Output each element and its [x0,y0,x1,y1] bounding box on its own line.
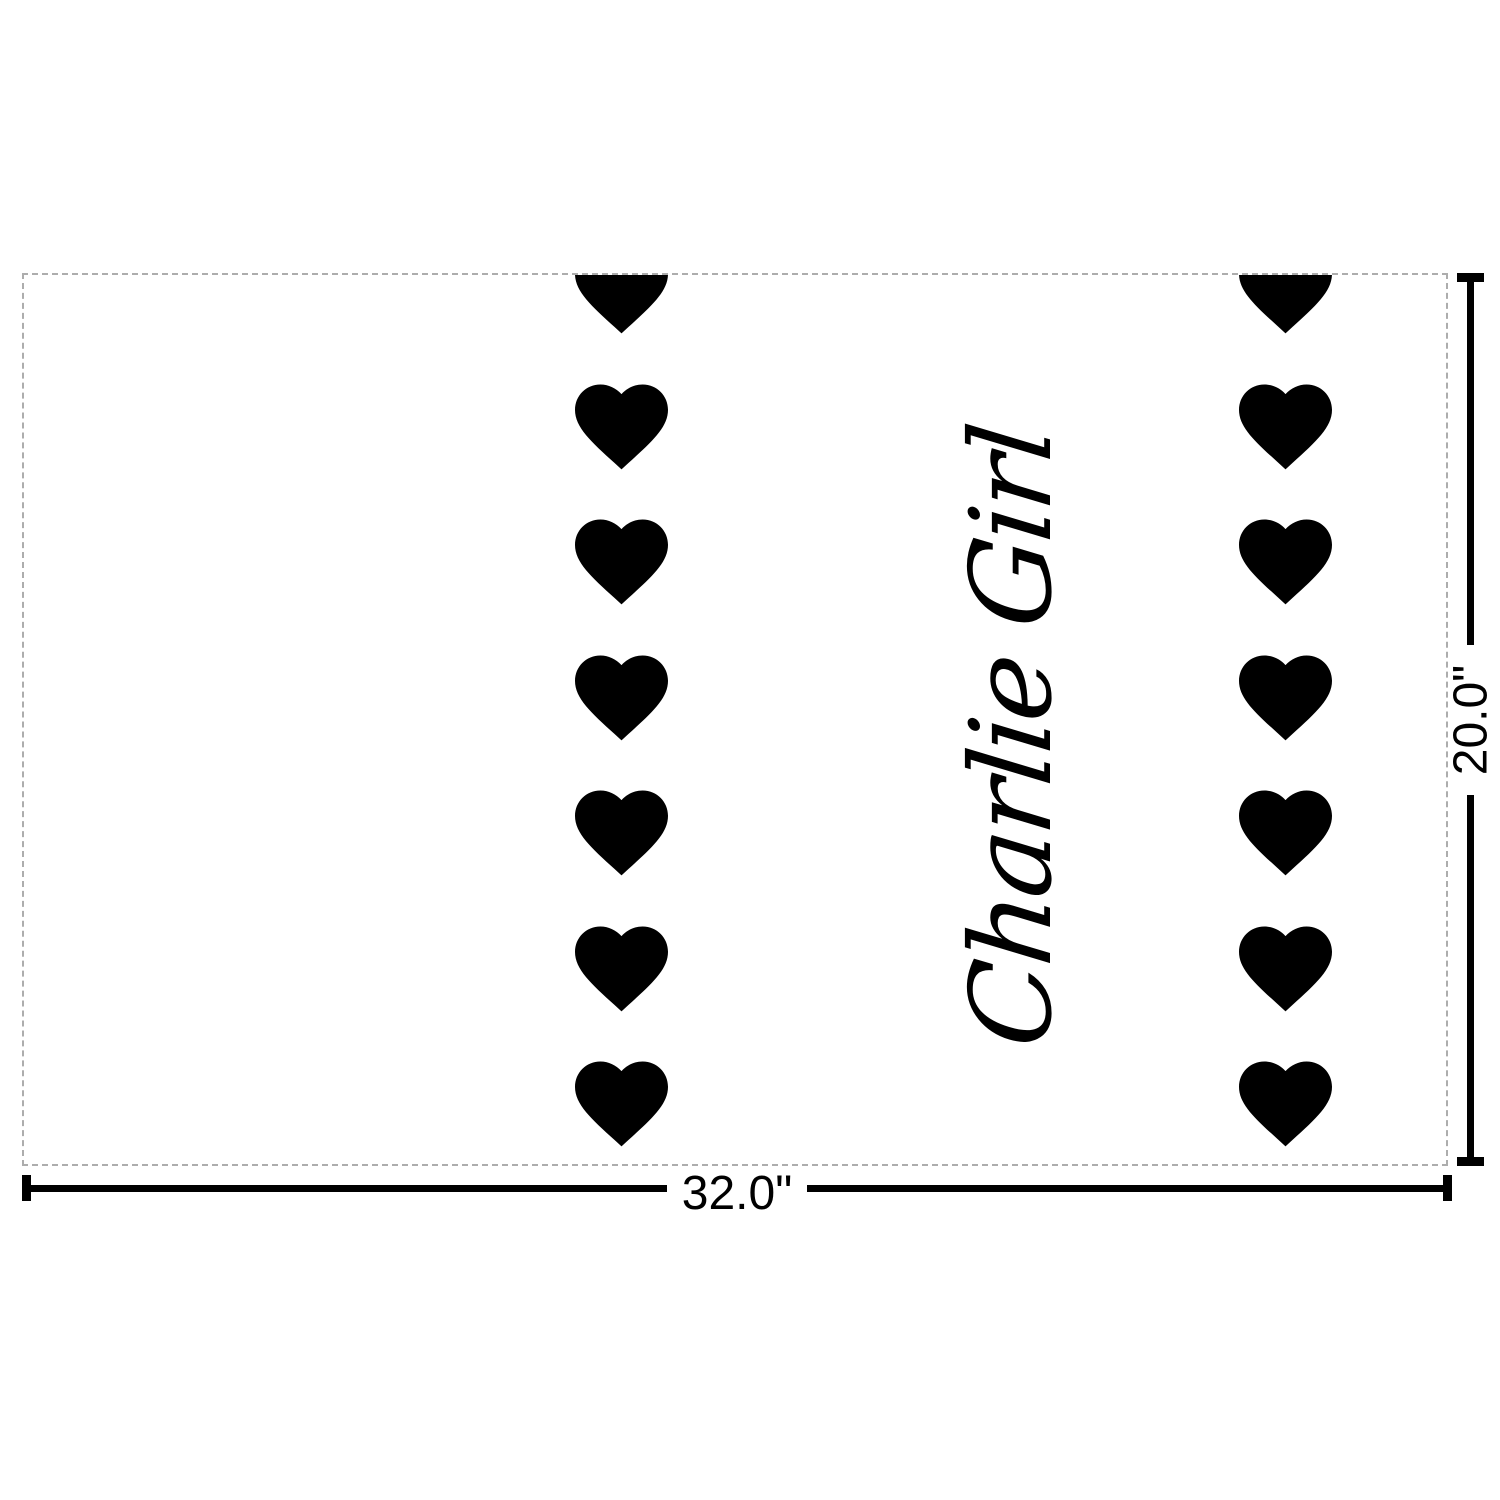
height-ruler: 20.0" [1457,273,1484,1166]
heart-icon [575,516,668,609]
heart-icon [1239,381,1332,474]
heart-icon [1239,1058,1332,1151]
heart-icon [1239,273,1332,338]
height-dimension-label: 20.0" [1457,645,1484,795]
height-dimension-label-text: 20.0" [1443,664,1498,774]
heart-column-left [575,275,668,1164]
heart-column-right [1239,275,1332,1164]
heart-icon [575,652,668,745]
width-dimension-label: 32.0" [667,1166,807,1221]
ruler-endcap-left [22,1175,31,1201]
product-preview-stage: Charlie Girl 32.0" 20.0" [0,0,1500,1500]
heart-icon [1239,787,1332,880]
heart-icon [575,787,668,880]
personalization-text: Charlie Girl [956,422,1068,1052]
ruler-endcap-bottom [1457,1157,1484,1166]
ruler-line [31,1185,667,1192]
heart-icon [1239,652,1332,745]
heart-icon [575,1058,668,1151]
heart-icon [575,273,668,338]
heart-icon [1239,923,1332,1016]
ruler-line [1467,795,1474,1158]
ruler-endcap-top [1457,273,1484,282]
heart-icon [575,923,668,1016]
product-canvas: Charlie Girl [22,273,1448,1166]
heart-icon [1239,516,1332,609]
ruler-line [807,1185,1443,1192]
ruler-endcap-right [1443,1175,1452,1201]
ruler-line [1467,282,1474,645]
heart-icon [575,381,668,474]
width-ruler: 32.0" [22,1175,1452,1201]
